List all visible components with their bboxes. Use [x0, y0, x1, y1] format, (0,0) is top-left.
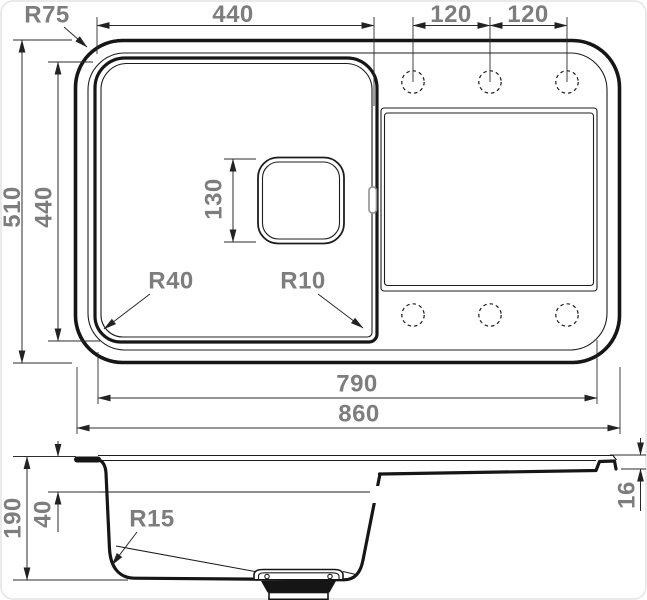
drain-body — [261, 581, 336, 593]
drainboard-profile — [380, 461, 617, 474]
top-view: R75 440 120 120 510 — [0, 1, 620, 434]
rim-top-end — [613, 456, 617, 461]
sink-rim-inner-edge — [88, 53, 607, 350]
overflow-slot-mark — [369, 187, 377, 213]
leader-line — [64, 27, 87, 47]
dim-bowl-depth: 440 — [31, 62, 101, 341]
leader-line — [104, 294, 150, 329]
tap-hole — [556, 304, 578, 326]
drain-outer-edge — [258, 158, 344, 244]
leader-line — [112, 532, 137, 565]
dim-rim-depth: 40 — [30, 441, 101, 532]
drain-opening — [258, 158, 344, 244]
dim-label-bowl-radius-br: R10 — [280, 268, 326, 295]
leader-line — [318, 294, 363, 328]
dim-label-bowl-depth: 440 — [31, 186, 58, 228]
drain-inner-edge — [263, 162, 340, 239]
dim-bowl-radius-bottom-left: R40 — [104, 268, 194, 330]
drain-outlet — [269, 593, 328, 600]
dim-label-overall-height: 190 — [0, 497, 27, 539]
drainboard-inner-edge — [385, 113, 594, 286]
bowl-slope-line — [116, 546, 255, 572]
bowl-inner-edge — [101, 64, 372, 338]
dim-label-overall-length: 860 — [338, 401, 380, 428]
drainboard-outer-edge — [381, 108, 597, 291]
tap-hole — [402, 304, 424, 326]
side-view: 190 40 R15 16 — [0, 438, 646, 599]
dim-wing-thickness: 16 — [610, 438, 646, 511]
dim-label-bowl-width: 440 — [212, 1, 254, 28]
sink-technical-drawing: R75 440 120 120 510 — [0, 0, 647, 600]
overflow-gap — [370, 486, 382, 503]
dim-bowl-radius-bottom-right: R10 — [280, 268, 363, 329]
dim-label-bowl-radius-bl: R40 — [148, 268, 194, 295]
dim-label-overall-width: 510 — [0, 186, 26, 228]
dim-label-rim-depth: 40 — [30, 500, 57, 528]
dim-label-corner-radius: R75 — [24, 2, 70, 29]
image-card-border — [1, 1, 646, 599]
sink-drawing-canvas: R75 440 120 120 510 — [0, 0, 647, 600]
dim-bottom-radius: R15 — [112, 506, 175, 566]
dim-label-wing-thickness: 16 — [614, 481, 641, 509]
dim-label-inner-length: 790 — [336, 371, 378, 398]
dim-drain-size: 130 — [201, 159, 257, 242]
tap-hole — [479, 304, 501, 326]
drainboard — [381, 108, 597, 291]
tap-holes — [402, 71, 578, 326]
dim-label-hole-pitch-right: 120 — [507, 1, 549, 28]
dim-label-bottom-radius: R15 — [129, 506, 175, 533]
sink-outer-edge — [76, 41, 620, 363]
bowl-outer-edge — [95, 58, 377, 342]
dim-label-drain-size: 130 — [201, 178, 228, 220]
dim-label-hole-pitch-left: 120 — [430, 1, 472, 28]
drain-fitting — [254, 570, 343, 600]
